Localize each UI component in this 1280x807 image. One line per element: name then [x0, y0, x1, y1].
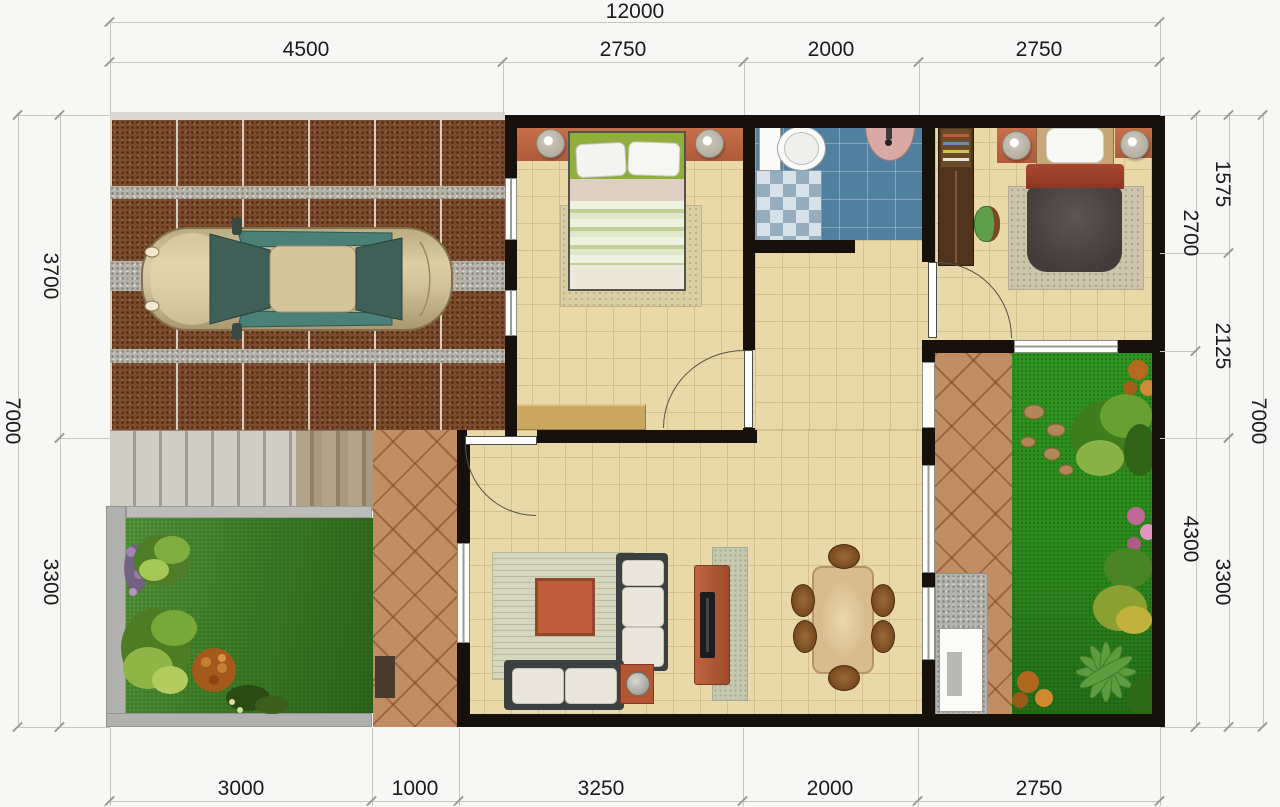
- dim-guide: [1160, 438, 1229, 439]
- dim-label-bottom-1: 3000: [218, 777, 265, 801]
- window-bedroom1-west: [505, 178, 517, 240]
- wall-south: [457, 714, 1165, 727]
- dim-guide: [18, 115, 110, 116]
- dim-guide: [1160, 727, 1263, 728]
- dim-guide: [1160, 728, 1161, 806]
- red-fold: [1026, 164, 1124, 189]
- window-living-east: [922, 465, 935, 573]
- rear-garden-plants: [1006, 350, 1156, 716]
- dark-blanket: [1027, 188, 1122, 272]
- bedroom-1-bed: [568, 131, 686, 291]
- washing-machine-handle: [947, 652, 962, 696]
- shower-checker-tiles: [756, 170, 822, 244]
- tv: [700, 592, 715, 658]
- wall-living-west: [457, 643, 470, 714]
- dim-guide: [744, 62, 745, 115]
- wall-bedroom1-east: [743, 115, 755, 350]
- dim-guide: [459, 728, 460, 806]
- window-bedroom2-south: [1014, 340, 1118, 353]
- entrance-door-leaf: [465, 436, 537, 445]
- wall-living-east: [922, 573, 935, 587]
- dim-label-bottom-3: 3250: [578, 777, 625, 801]
- dim-guide: [110, 728, 111, 806]
- floor-plan-canvas: 12000 4500 2750 2000 2750 3000 1000 3250…: [0, 0, 1280, 807]
- wall-lamp: [536, 129, 565, 158]
- wall-bedroom1-east: [743, 428, 755, 443]
- dim-guide: [110, 22, 111, 115]
- pillow: [575, 142, 627, 179]
- dim-label-top-2: 2750: [600, 38, 647, 62]
- wall-east-outer: [1152, 115, 1165, 727]
- dining-chair: [791, 584, 815, 617]
- green-bush-mid: [1104, 548, 1152, 588]
- blanket-fold: [570, 179, 684, 201]
- plant-pot: [626, 672, 650, 696]
- dim-label-top-3: 2000: [808, 38, 855, 62]
- car-windshield: [210, 234, 270, 324]
- sofa-main: [616, 553, 668, 671]
- dim-line-right-inner: [1196, 115, 1197, 727]
- carport-concrete-strip: [110, 186, 505, 199]
- palm-bottom: [1076, 642, 1136, 702]
- window-living-east: [922, 587, 935, 660]
- hall-floor: [755, 240, 935, 443]
- dim-line-bottom: [110, 801, 1160, 802]
- wall-bedroom2-south: [1118, 340, 1165, 353]
- dim-label-left-1: 3700: [38, 253, 62, 300]
- dining-chair: [871, 584, 895, 617]
- dim-label-bottom-2: 1000: [392, 777, 439, 801]
- car-mirror: [232, 323, 242, 340]
- dim-label-right-outer-1: 1575: [1210, 161, 1234, 208]
- bedroom1-door-leaf: [744, 350, 753, 428]
- dim-label-left-total: 7000: [0, 398, 24, 445]
- dining-chair: [871, 620, 895, 653]
- yellow-bush: [1093, 585, 1152, 634]
- dining-chair: [828, 665, 860, 691]
- wall-living-east: [922, 660, 935, 714]
- dim-label-right-outer-3: 3300: [1210, 559, 1234, 606]
- wall-living-north: [537, 430, 757, 443]
- dim-label-right-inner-2: 4300: [1178, 516, 1202, 563]
- dim-guide: [372, 728, 373, 806]
- car: [136, 218, 458, 340]
- bedroom-1-dresser: [512, 404, 646, 430]
- window-bedroom1-west: [505, 290, 517, 336]
- car-side-window: [238, 311, 392, 327]
- dim-guide: [1160, 22, 1161, 115]
- window-living-west: [457, 543, 470, 643]
- dim-guide: [60, 438, 110, 439]
- dining-chair: [828, 544, 860, 569]
- bushes-top-right: [1070, 394, 1156, 476]
- shrub-bottom-left: [121, 608, 197, 694]
- orange-shrub: [192, 648, 236, 692]
- dim-label-total-width: 12000: [606, 0, 664, 24]
- bedroom2-door-leaf: [928, 262, 937, 338]
- deck-planks-gray: [110, 430, 296, 511]
- dim-label-bottom-5: 2750: [1016, 777, 1063, 801]
- bedroom-2-chair: [974, 206, 1000, 242]
- dim-guide: [18, 727, 110, 728]
- wall-bedroom2-west: [922, 115, 935, 262]
- dim-label-right-inner-1: 2700: [1178, 210, 1202, 257]
- dining-table: [812, 566, 874, 674]
- dim-guide: [918, 728, 919, 806]
- dim-label-right-total: 7000: [1246, 398, 1270, 445]
- dim-label-left-2: 3300: [38, 559, 62, 606]
- wall-bedroom2-south: [922, 340, 1014, 353]
- wall-west-bedroom1: [505, 115, 517, 443]
- car-mirror: [232, 218, 242, 235]
- wardrobe: [938, 126, 974, 266]
- wall-living-east: [922, 353, 935, 362]
- wall-lamp: [1120, 130, 1149, 159]
- coffee-table: [535, 578, 595, 636]
- dim-guide: [1160, 115, 1263, 116]
- pillow: [627, 141, 680, 177]
- striped-blanket: [570, 201, 684, 265]
- door-mat: [375, 656, 395, 698]
- wall-north: [505, 115, 1165, 128]
- dining-chair: [793, 620, 817, 653]
- wall-living-east: [922, 428, 935, 465]
- dim-line-top: [110, 62, 1160, 63]
- dim-guide: [1160, 351, 1196, 352]
- dim-label-bottom-4: 2000: [807, 777, 854, 801]
- car-side-window: [238, 231, 392, 247]
- dim-line-left: [60, 115, 61, 727]
- orange-flowers-bottom: [1012, 671, 1053, 708]
- low-bushes: [226, 685, 289, 714]
- dim-guide: [743, 728, 744, 806]
- sink-drain: [885, 139, 892, 146]
- toilet-bowl-inner: [784, 132, 819, 165]
- dim-label-top-1: 4500: [283, 38, 330, 62]
- wall-bathroom-south: [743, 240, 855, 253]
- carport-concrete-strip: [110, 349, 505, 363]
- wall-lamp: [695, 129, 724, 158]
- car-roof: [270, 246, 356, 312]
- bedroom-2-bed: [1026, 122, 1124, 272]
- dim-guide: [503, 62, 504, 115]
- garden-rocks: [1021, 405, 1073, 475]
- dim-label-right-outer-2: 2125: [1210, 323, 1234, 370]
- sofa-small: [504, 660, 624, 710]
- shrub-top-left: [134, 534, 190, 586]
- pillow: [1046, 128, 1104, 163]
- front-garden-plants: [110, 510, 376, 727]
- wardrobe-shelf: [941, 129, 971, 167]
- dim-guide: [919, 62, 920, 115]
- dim-label-top-4: 2750: [1016, 38, 1063, 62]
- deck-planks-tan: [296, 430, 373, 511]
- rear-door-opening: [922, 362, 935, 428]
- car-rear-window: [356, 238, 402, 320]
